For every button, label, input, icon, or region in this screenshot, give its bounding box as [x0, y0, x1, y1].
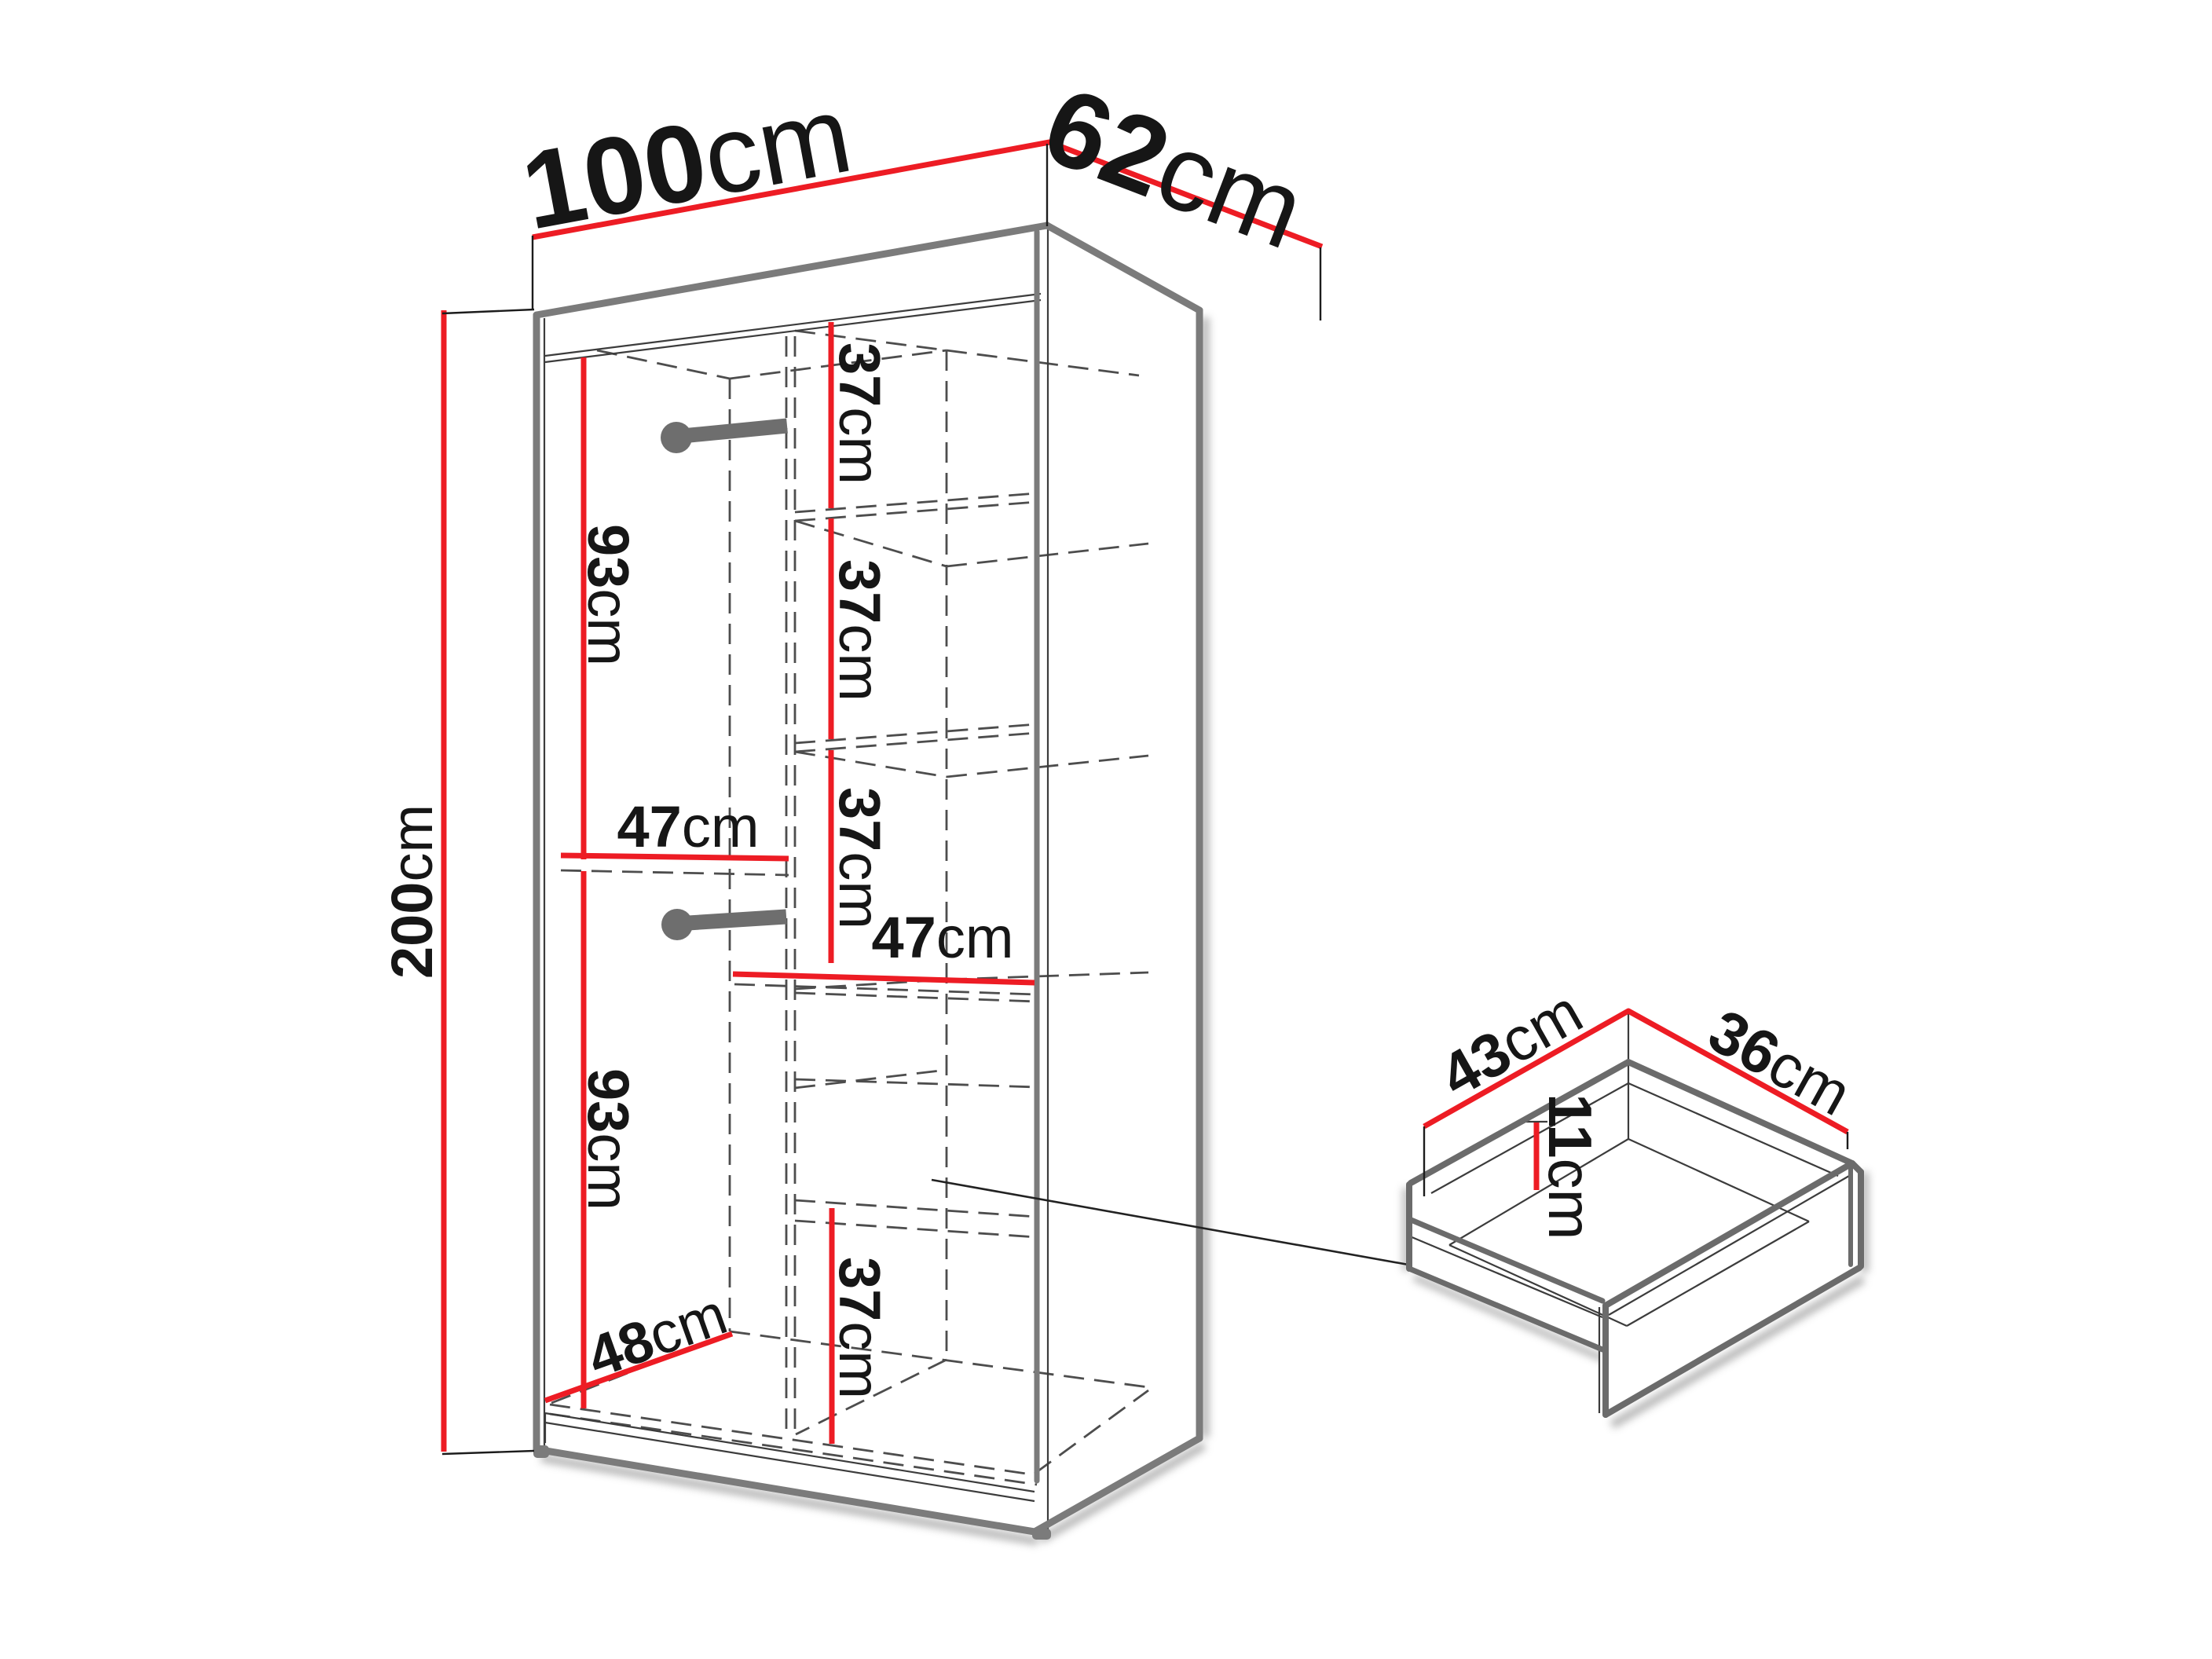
svg-text:37cm: 37cm: [827, 342, 892, 485]
svg-text:37cm: 37cm: [827, 1257, 892, 1399]
svg-text:93cm: 93cm: [576, 1068, 641, 1210]
svg-text:93cm: 93cm: [576, 524, 641, 666]
svg-text:11cm: 11cm: [1536, 1093, 1605, 1240]
svg-text:47cm: 47cm: [617, 794, 760, 859]
svg-text:47cm: 47cm: [872, 905, 1014, 970]
svg-text:200cm: 200cm: [379, 804, 445, 979]
svg-text:37cm: 37cm: [827, 559, 892, 701]
